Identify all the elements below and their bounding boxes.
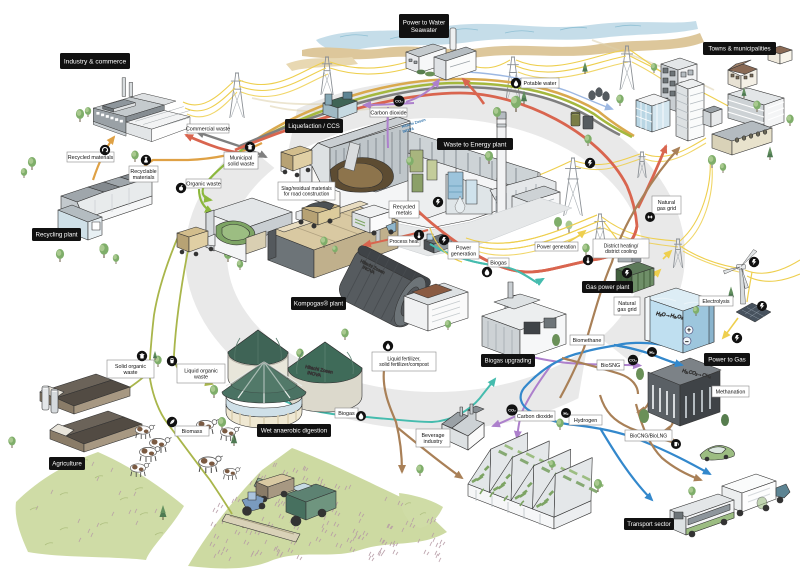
svg-text:CO₂: CO₂: [629, 358, 637, 363]
svg-text:Wet anaerobic digestion: Wet anaerobic digestion: [261, 428, 328, 435]
svg-text:industry: industry: [424, 439, 443, 445]
svg-text:Carbon dioxide: Carbon dioxide: [370, 110, 406, 116]
svg-text:Industry & commerce: Industry & commerce: [64, 58, 127, 65]
svg-text:solid fertilizer/compost: solid fertilizer/compost: [379, 362, 429, 368]
svg-text:Seawater: Seawater: [411, 27, 437, 34]
svg-text:Waste to Energy plant: Waste to Energy plant: [444, 141, 507, 148]
svg-text:Methanation: Methanation: [716, 389, 746, 395]
svg-text:Biomethane: Biomethane: [573, 338, 602, 344]
svg-text:Gas power plant: Gas power plant: [586, 285, 630, 291]
svg-text:H₂: H₂: [649, 350, 654, 355]
svg-text:Power generation: Power generation: [537, 244, 576, 250]
svg-text:Biogas: Biogas: [338, 411, 355, 417]
svg-text:BioSNG: BioSNG: [601, 363, 620, 369]
svg-text:Natural: Natural: [618, 301, 635, 307]
svg-text:BioCNG/BioLNG: BioCNG/BioLNG: [630, 433, 667, 439]
svg-text:Municipal: Municipal: [230, 155, 253, 161]
svg-text:−: −: [685, 340, 689, 346]
svg-text:Transport sector: Transport sector: [627, 522, 670, 528]
svg-text:Process heat: Process heat: [389, 239, 419, 245]
svg-text:Power: Power: [456, 245, 471, 251]
svg-text:district cooling: district cooling: [605, 249, 637, 255]
svg-text:Recycled: Recycled: [393, 204, 415, 210]
svg-text:Biomass: Biomass: [182, 429, 203, 435]
svg-text:+: +: [687, 328, 691, 334]
svg-text:gas grid: gas grid: [657, 206, 676, 212]
svg-text:waste: waste: [122, 370, 137, 376]
svg-text:CO₂: CO₂: [508, 408, 516, 413]
svg-text:solid waste: solid waste: [228, 162, 255, 168]
svg-text:Electrolysis: Electrolysis: [702, 299, 730, 305]
svg-text:Beverage: Beverage: [421, 433, 444, 439]
svg-text:Solid organic: Solid organic: [115, 364, 146, 370]
svg-text:Power to Water: Power to Water: [403, 20, 445, 27]
svg-text:metals: metals: [396, 211, 412, 217]
svg-text:for road construction: for road construction: [284, 192, 330, 198]
svg-text:Liquefaction / CCS: Liquefaction / CCS: [288, 123, 340, 130]
svg-text:Commercial waste: Commercial waste: [186, 126, 230, 132]
svg-text:gas grid: gas grid: [617, 307, 636, 313]
svg-text:Liquid organic: Liquid organic: [184, 368, 218, 374]
svg-text:Power to Gas: Power to Gas: [708, 357, 746, 364]
svg-text:Potable water: Potable water: [524, 81, 557, 87]
svg-text:Recycling plant: Recycling plant: [36, 232, 78, 239]
svg-text:H₂: H₂: [563, 411, 568, 416]
svg-text:Natural: Natural: [658, 200, 675, 206]
svg-text:Biogas upgrading: Biogas upgrading: [485, 359, 532, 365]
svg-text:Carbon dioxide: Carbon dioxide: [517, 414, 553, 420]
svg-text:Organic waste: Organic waste: [186, 181, 220, 187]
svg-text:waste: waste: [193, 375, 208, 381]
svg-text:Recycled materials: Recycled materials: [68, 155, 114, 161]
svg-text:generation: generation: [451, 252, 476, 258]
svg-text:Kompogas® plant: Kompogas® plant: [294, 301, 344, 308]
svg-text:Recyclable: Recyclable: [130, 169, 156, 175]
svg-text:CO₂: CO₂: [395, 99, 403, 104]
svg-text:Towns & municipalities: Towns & municipalities: [708, 46, 770, 53]
svg-text:materials: materials: [133, 175, 155, 181]
svg-text:Hydrogen: Hydrogen: [574, 418, 597, 424]
svg-text:Agriculture: Agriculture: [52, 461, 82, 468]
svg-text:Biogas: Biogas: [490, 260, 507, 266]
